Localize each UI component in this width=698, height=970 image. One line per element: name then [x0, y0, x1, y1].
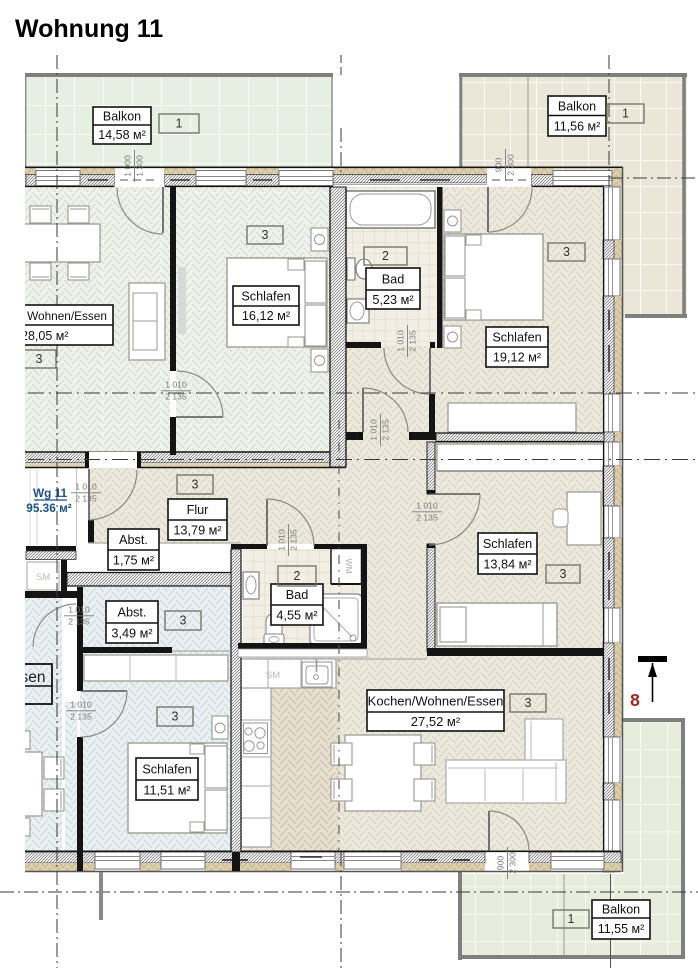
svg-text:3: 3	[262, 228, 269, 242]
svg-text:95.36 м²: 95.36 м²	[26, 501, 72, 515]
svg-text:1 010: 1 010	[75, 482, 97, 492]
svg-text:14,58 м²: 14,58 м²	[98, 128, 146, 142]
svg-text:2 135: 2 135	[416, 513, 438, 523]
svg-text:3: 3	[560, 567, 567, 581]
svg-text:Balkon: Balkon	[558, 99, 596, 113]
svg-text:Abst.: Abst.	[118, 606, 147, 620]
svg-text:11,51 м²: 11,51 м²	[143, 784, 190, 798]
svg-text:3: 3	[525, 696, 532, 710]
svg-text:Balkon: Balkon	[103, 110, 141, 124]
svg-text:5,23 м²: 5,23 м²	[372, 293, 413, 307]
svg-text:2 135: 2 135	[408, 330, 418, 352]
svg-text:3: 3	[180, 614, 187, 628]
svg-text:1 010: 1 010	[277, 529, 287, 551]
svg-text:Flur: Flur	[187, 503, 210, 517]
svg-text:27,52 м²: 27,52 м²	[411, 714, 461, 729]
svg-text:1: 1	[176, 117, 183, 131]
svg-text:1 010: 1 010	[70, 700, 92, 710]
svg-text:Wohnung 11: Wohnung 11	[15, 15, 163, 43]
svg-text:19,12 м²: 19,12 м²	[493, 351, 541, 365]
svg-text:1 010: 1 010	[396, 330, 406, 352]
svg-text:3: 3	[563, 245, 570, 259]
svg-text:SM: SM	[266, 670, 280, 681]
svg-text:Schlafen: Schlafen	[483, 537, 532, 551]
svg-text:1,75 м²: 1,75 м²	[113, 554, 154, 568]
svg-text:Wohnen/Essen: Wohnen/Essen	[27, 309, 107, 323]
svg-text:2 300: 2 300	[506, 154, 516, 176]
svg-text:900: 900	[496, 856, 506, 871]
svg-text:8: 8	[630, 690, 640, 710]
svg-text:28,05 м²: 28,05 м²	[21, 329, 69, 343]
svg-text:SM: SM	[36, 572, 50, 583]
svg-text:2 135: 2 135	[68, 617, 90, 627]
svg-text:3: 3	[36, 352, 43, 366]
svg-text:900: 900	[494, 158, 504, 173]
svg-text:Schlafen: Schlafen	[492, 331, 541, 345]
svg-text:1 010: 1 010	[165, 380, 187, 390]
svg-text:13,84 м²: 13,84 м²	[483, 558, 531, 572]
svg-text:1 000: 1 000	[123, 155, 133, 177]
svg-text:1 010: 1 010	[68, 605, 90, 615]
svg-text:2 135: 2 135	[289, 529, 299, 551]
svg-text:3: 3	[192, 478, 199, 492]
svg-text:13,79 м²: 13,79 м²	[173, 524, 221, 538]
svg-text:4,55 м²: 4,55 м²	[276, 609, 317, 623]
svg-text:1 010: 1 010	[369, 419, 379, 441]
svg-text:2: 2	[294, 569, 301, 583]
svg-text:2 300: 2 300	[508, 852, 518, 874]
svg-text:3: 3	[172, 710, 179, 724]
svg-text:Bad: Bad	[382, 273, 405, 287]
svg-text:2: 2	[382, 249, 389, 263]
svg-text:Kochen/Wohnen/Essen: Kochen/Wohnen/Essen	[368, 694, 504, 709]
svg-text:11,55 м²: 11,55 м²	[598, 922, 645, 936]
svg-text:11,56 м²: 11,56 м²	[554, 119, 601, 133]
svg-text:Schlafen: Schlafen	[142, 763, 191, 777]
svg-text:16,12 м²: 16,12 м²	[242, 309, 290, 323]
svg-text:2 135: 2 135	[70, 712, 92, 722]
svg-text:1 010: 1 010	[416, 501, 438, 511]
svg-text:Bad: Bad	[286, 588, 309, 602]
svg-text:1: 1	[622, 107, 629, 121]
svg-text:WM: WM	[344, 558, 354, 573]
svg-text:2 135: 2 135	[381, 419, 391, 441]
svg-text:2 135: 2 135	[75, 494, 97, 504]
svg-text:1 300: 1 300	[135, 155, 145, 177]
svg-text:Schlafen: Schlafen	[241, 290, 290, 304]
svg-text:3,49 м²: 3,49 м²	[111, 627, 152, 641]
svg-text:Abst.: Abst.	[119, 533, 148, 547]
svg-text:Balkon: Balkon	[602, 903, 640, 917]
svg-text:Wg 11: Wg 11	[33, 486, 68, 500]
svg-text:2 135: 2 135	[165, 392, 187, 402]
svg-text:1: 1	[568, 912, 575, 926]
